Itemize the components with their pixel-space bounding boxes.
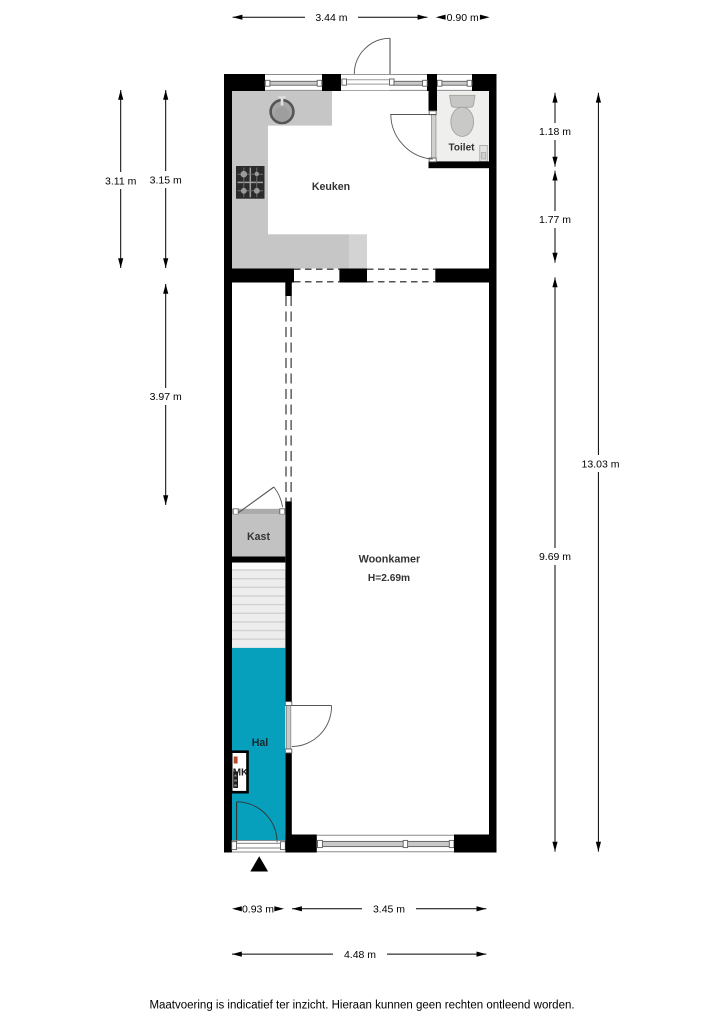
svg-text:Woonkamer: Woonkamer <box>359 554 421 566</box>
svg-text:Keuken: Keuken <box>312 181 350 193</box>
svg-text:Maatvoering is indicatief ter: Maatvoering is indicatief ter inzicht. H… <box>149 1000 574 1012</box>
svg-text:3.44 m: 3.44 m <box>315 12 347 24</box>
svg-text:Toilet: Toilet <box>449 143 476 154</box>
svg-text:9.69 m: 9.69 m <box>539 551 571 563</box>
svg-text:Hal: Hal <box>252 737 269 749</box>
svg-text:H=2.69m: H=2.69m <box>368 573 410 584</box>
svg-text:13.03 m: 13.03 m <box>582 458 620 470</box>
svg-text:3.97 m: 3.97 m <box>150 391 182 403</box>
svg-text:3.15 m: 3.15 m <box>150 175 182 187</box>
svg-text:3.45 m: 3.45 m <box>373 904 405 916</box>
svg-text:MK: MK <box>233 767 249 778</box>
svg-text:4.48 m: 4.48 m <box>344 949 376 961</box>
svg-text:Kast: Kast <box>247 531 270 543</box>
svg-text:0.90 m: 0.90 m <box>447 12 479 24</box>
svg-text:0.93 m: 0.93 m <box>242 904 274 916</box>
svg-text:3.11 m: 3.11 m <box>105 176 137 188</box>
svg-text:1.77 m: 1.77 m <box>539 214 571 226</box>
svg-text:1.18 m: 1.18 m <box>539 126 571 138</box>
